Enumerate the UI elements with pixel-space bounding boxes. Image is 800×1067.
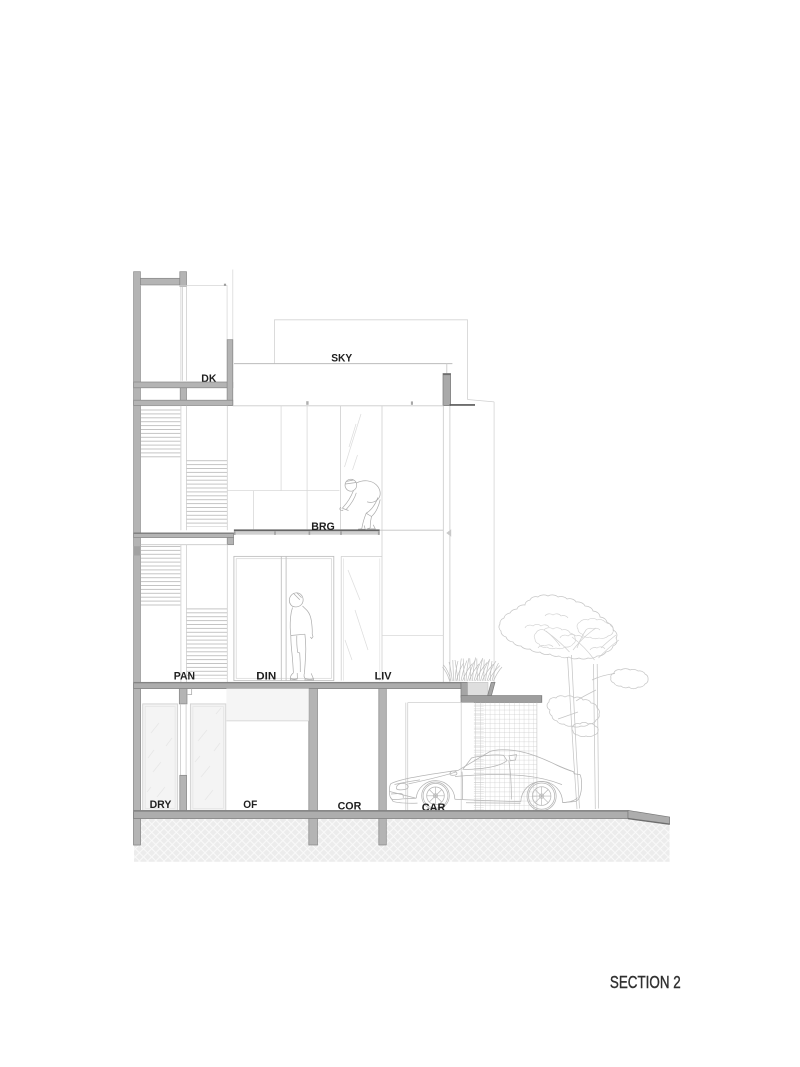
svg-text:LIV: LIV [375,670,392,682]
svg-text:PAN: PAN [174,670,195,682]
svg-text:SKY: SKY [331,352,352,364]
svg-text:DIN: DIN [256,670,276,682]
svg-text:DRY: DRY [150,799,172,811]
svg-text:BRG: BRG [311,521,335,533]
svg-text:SECTION 2: SECTION 2 [610,972,681,992]
svg-text:OF: OF [243,799,257,811]
